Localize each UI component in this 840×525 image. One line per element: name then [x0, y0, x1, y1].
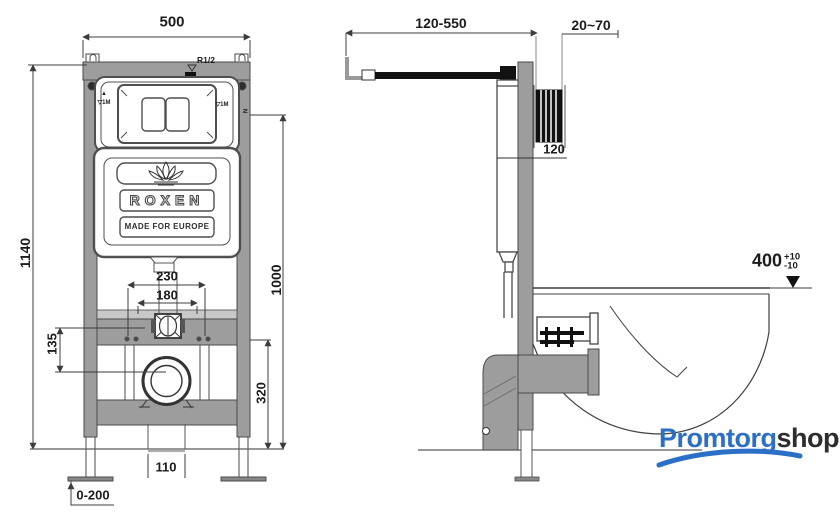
dim-230-label: 230: [156, 270, 178, 283]
dim-height-label: 1140: [18, 238, 32, 268]
dim-supply-label: 120-550: [415, 16, 466, 30]
floor-line: [30, 449, 702, 450]
flush-buttons: [142, 98, 189, 131]
dim-135-label: 135: [46, 333, 59, 355]
technical-drawing: 500 1140 230 180 135 1000 320 110 0-200 …: [0, 0, 840, 525]
wall-sleeve-hatched: [534, 85, 565, 148]
drain-pipe-side: [518, 349, 599, 395]
side-dimensions: [346, 30, 812, 288]
water-fitting: [151, 314, 185, 338]
logo-part2: shop: [777, 423, 840, 453]
dim-110-label: 110: [156, 461, 177, 474]
dim-depth-label: 120: [543, 143, 565, 156]
flush-pipe-side: [537, 313, 598, 347]
inlet-size-label: R1/2: [197, 56, 215, 65]
level-mark-icon: ▲: [101, 91, 107, 97]
dim-320-label: 320: [255, 382, 268, 404]
dim-wall-label: 20~70: [571, 18, 610, 32]
flush-plate: [95, 77, 239, 152]
level-mark-left: ▽1M: [98, 100, 111, 106]
drain-elbow-side: [483, 355, 519, 450]
brand-tagline: MADE FOR EUROPE: [125, 223, 210, 231]
datum-triangle: [786, 276, 800, 288]
dim-1000-label: 1000: [269, 264, 283, 295]
cistern-side: [497, 80, 519, 318]
water-supply-pipe: [345, 57, 516, 80]
brand-name: ROXEN: [130, 193, 205, 207]
frame-rail-side: [515, 62, 539, 481]
dim-rim-height: 400 +10 -10: [752, 251, 800, 272]
promtorgshop-logo: Promtorgshop: [659, 423, 839, 454]
n-mark: N: [241, 109, 247, 113]
dim-180-label: 180: [156, 289, 178, 302]
dim-rim-tol-minus: -10: [784, 261, 800, 270]
dim-width-label: 500: [159, 15, 184, 30]
logo-part1: Promtorg: [659, 423, 777, 453]
dim-rim-value: 400: [752, 251, 782, 272]
level-mark-right: ▽1M: [216, 102, 229, 108]
dim-feet-label: 0-200: [76, 489, 109, 502]
